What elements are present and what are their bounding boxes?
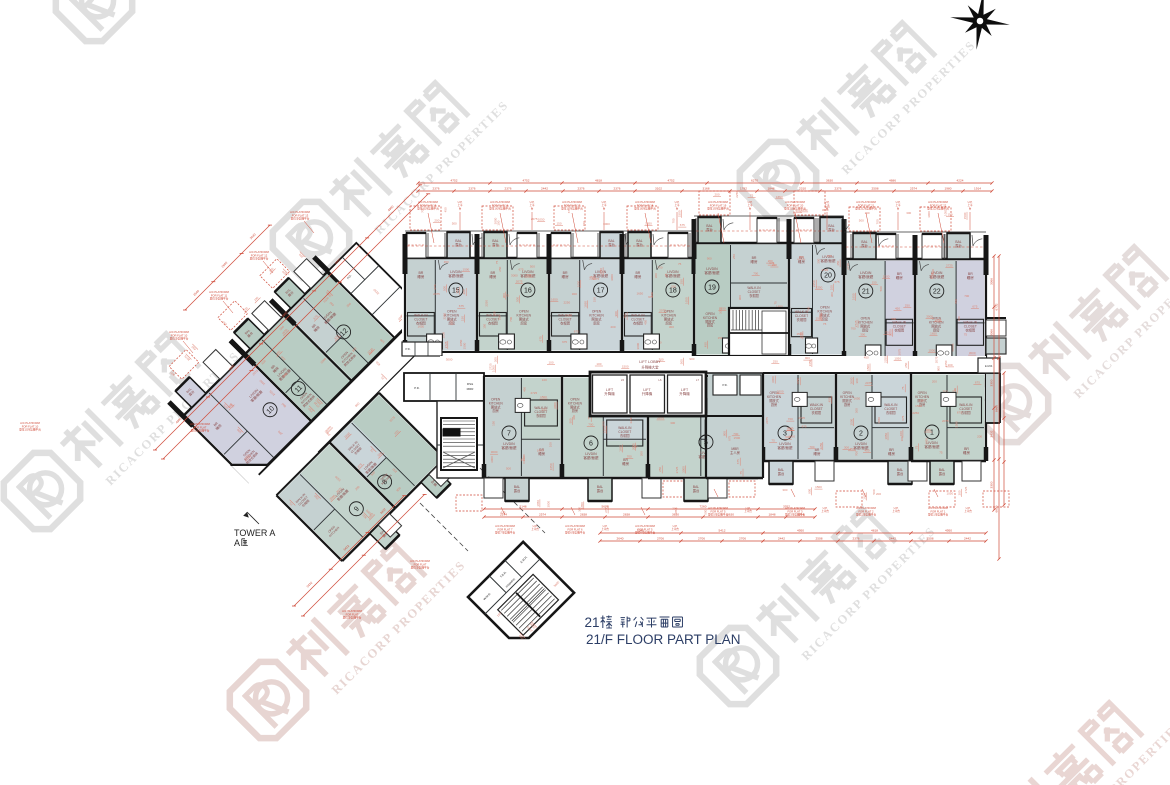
svg-text:單位22冷氣機平台: 單位22冷氣機平台: [927, 207, 949, 211]
svg-text:1500: 1500: [777, 389, 784, 393]
svg-text:4818: 4818: [871, 529, 878, 533]
svg-text:2376: 2376: [835, 187, 842, 191]
svg-text:廚房: 廚房: [572, 408, 578, 413]
svg-text:1650: 1650: [645, 222, 652, 226]
svg-text:2250: 2250: [883, 356, 887, 363]
svg-text:2376: 2376: [433, 187, 440, 191]
svg-text:5412: 5412: [719, 529, 726, 533]
svg-text:單位15冷氣機平台: 單位15冷氣機平台: [417, 207, 439, 211]
svg-text:300: 300: [855, 408, 859, 413]
svg-text:500: 500: [680, 359, 684, 364]
svg-text:睡房: 睡房: [622, 461, 630, 466]
svg-text:2075: 2075: [865, 381, 872, 385]
svg-text:300: 300: [670, 421, 675, 425]
svg-text:2442: 2442: [889, 537, 896, 541]
svg-text:675: 675: [827, 254, 832, 258]
svg-text:露台: 露台: [897, 471, 904, 476]
svg-text:450: 450: [632, 445, 637, 449]
svg-text:上平台: 上平台: [892, 509, 900, 513]
svg-text:150: 150: [498, 315, 502, 320]
svg-text:4752: 4752: [668, 179, 675, 183]
svg-text:900: 900: [738, 295, 742, 300]
svg-text:單位冷氣機平台: 單位冷氣機平台: [291, 217, 310, 221]
svg-text:300: 300: [494, 357, 498, 362]
svg-text:5: 5: [704, 440, 708, 447]
svg-text:單位冷氣機平台: 單位冷氣機平台: [343, 616, 362, 620]
svg-text:100: 100: [947, 363, 952, 367]
svg-text:21: 21: [584, 615, 599, 630]
svg-text:300: 300: [782, 488, 787, 492]
svg-text:1050: 1050: [930, 272, 934, 279]
svg-text:2725: 2725: [946, 264, 953, 268]
svg-text:700: 700: [627, 454, 632, 458]
svg-text:2508: 2508: [872, 187, 879, 191]
svg-text:75: 75: [914, 445, 918, 449]
svg-text:RS&: RS&: [467, 382, 473, 386]
svg-text:2250: 2250: [912, 411, 919, 415]
svg-text:單位6冷氣機平台: 單位6冷氣機平台: [565, 531, 586, 535]
svg-text:200: 200: [932, 380, 937, 384]
svg-text:衣帽間: 衣帽間: [749, 293, 759, 298]
svg-text:450: 450: [828, 397, 832, 402]
svg-text:200: 200: [977, 435, 982, 439]
svg-text:150: 150: [461, 316, 465, 321]
svg-text:250: 250: [799, 255, 804, 259]
svg-text:客廳/飯廳: 客廳/飯廳: [502, 445, 517, 450]
svg-text:1500: 1500: [883, 274, 890, 278]
svg-text:675: 675: [539, 336, 543, 341]
svg-text:150: 150: [582, 221, 586, 226]
svg-text:升降機: 升降機: [604, 391, 615, 396]
svg-text:1650: 1650: [418, 324, 425, 328]
svg-text:睡房: 睡房: [967, 275, 975, 280]
svg-text:700: 700: [851, 327, 856, 331]
svg-text:1980: 1980: [945, 187, 952, 191]
svg-text:1500: 1500: [955, 421, 959, 428]
svg-text:單位18冷氣機平台: 單位18冷氣機平台: [634, 207, 656, 211]
svg-text:5148: 5148: [520, 505, 527, 509]
svg-text:1650: 1650: [877, 417, 881, 424]
svg-text:100: 100: [548, 442, 552, 447]
svg-text:單位20冷氣機平台: 單位20冷氣機平台: [784, 207, 806, 211]
svg-text:升降機: 升降機: [642, 391, 653, 396]
svg-text:1500: 1500: [928, 349, 935, 353]
svg-text:1500: 1500: [963, 212, 967, 219]
svg-text:2706: 2706: [657, 537, 664, 541]
svg-text:100: 100: [548, 361, 553, 365]
svg-text:200: 200: [714, 193, 719, 197]
svg-text:單位5冷氣機平台: 單位5冷氣機平台: [708, 513, 729, 517]
svg-text:睡房: 睡房: [562, 274, 570, 279]
svg-text:TOWER A: TOWER A: [234, 528, 275, 538]
svg-text:1650: 1650: [808, 359, 812, 366]
svg-text:1650: 1650: [580, 502, 584, 509]
svg-text:1050: 1050: [946, 492, 953, 496]
svg-text:675: 675: [769, 261, 774, 265]
svg-text:2075: 2075: [659, 309, 666, 313]
svg-text:單位19冷氣機平台: 單位19冷氣機平台: [707, 207, 729, 211]
svg-text:3168: 3168: [703, 187, 710, 191]
svg-text:2250: 2250: [629, 416, 633, 423]
svg-text:2250: 2250: [442, 313, 446, 320]
svg-text:衣帽間: 衣帽間: [961, 410, 971, 415]
svg-text:300: 300: [455, 288, 459, 293]
svg-text:250: 250: [732, 254, 736, 259]
svg-text:單位17冷氣機平台: 單位17冷氣機平台: [561, 207, 583, 211]
svg-text:300: 300: [493, 311, 497, 316]
svg-text:450: 450: [895, 307, 900, 311]
svg-text:1500: 1500: [915, 404, 922, 408]
svg-text:2310: 2310: [799, 187, 806, 191]
svg-text:700: 700: [964, 294, 969, 298]
svg-text:LIFT LOBBY: LIFT LOBBY: [639, 360, 661, 364]
svg-text:200: 200: [462, 289, 466, 294]
svg-text:1650: 1650: [549, 463, 553, 470]
svg-text:500: 500: [541, 408, 546, 412]
svg-text:1500: 1500: [815, 485, 822, 489]
svg-text:廚房: 廚房: [493, 408, 499, 413]
svg-text:900: 900: [614, 311, 618, 316]
svg-text:2376: 2376: [853, 537, 860, 541]
svg-text:1650: 1650: [619, 445, 623, 452]
svg-text:台: 台: [826, 206, 829, 210]
svg-text:主人房: 主人房: [730, 450, 741, 455]
svg-text:3000: 3000: [546, 501, 550, 508]
svg-text:3000: 3000: [490, 456, 494, 463]
svg-text:150: 150: [947, 213, 952, 217]
svg-text:675: 675: [957, 411, 962, 415]
svg-text:3000: 3000: [494, 217, 498, 224]
svg-text:1050: 1050: [492, 365, 496, 372]
svg-text:300: 300: [669, 325, 674, 329]
svg-text:150: 150: [865, 211, 870, 215]
svg-text:2725: 2725: [846, 263, 850, 270]
svg-text:客廳/飯廳: 客廳/飯廳: [584, 455, 599, 460]
svg-text:1500: 1500: [816, 317, 823, 321]
svg-text:200: 200: [876, 492, 881, 496]
svg-text:衣帽間: 衣帽間: [536, 413, 546, 418]
svg-text:700: 700: [807, 306, 811, 311]
svg-text:客廳/飯廳: 客廳/飯廳: [858, 274, 873, 279]
svg-text:250: 250: [905, 304, 910, 308]
svg-text:3432: 3432: [990, 430, 994, 437]
svg-text:500: 500: [516, 297, 520, 302]
svg-text:1650: 1650: [551, 298, 558, 302]
svg-text:1650: 1650: [719, 306, 726, 310]
svg-text:E.M.R.: E.M.R.: [985, 364, 993, 368]
svg-text:20: 20: [824, 273, 832, 280]
svg-text:台: 台: [749, 206, 752, 210]
svg-text:1650: 1650: [854, 397, 861, 401]
svg-text:1500: 1500: [849, 418, 853, 425]
svg-text:露台: 露台: [778, 471, 785, 476]
svg-text:250: 250: [498, 266, 502, 271]
svg-text:3300: 3300: [990, 481, 994, 488]
svg-text:台: 台: [531, 206, 534, 210]
svg-text:2442: 2442: [778, 537, 785, 541]
svg-text:2640: 2640: [617, 537, 624, 541]
svg-text:2250: 2250: [812, 280, 816, 287]
svg-text:1500: 1500: [462, 342, 466, 349]
svg-text:4950: 4950: [797, 529, 804, 533]
svg-text:18: 18: [669, 288, 677, 295]
svg-text:500: 500: [443, 286, 447, 291]
svg-text:衣帽間: 衣帽間: [797, 317, 808, 322]
svg-text:3000: 3000: [636, 342, 640, 349]
svg-text:100: 100: [957, 316, 961, 321]
svg-text:500: 500: [530, 264, 535, 268]
svg-text:2574: 2574: [500, 513, 507, 517]
svg-text:700: 700: [672, 218, 676, 223]
svg-text:2376: 2376: [614, 187, 621, 191]
svg-text:300: 300: [855, 378, 859, 383]
svg-text:3000: 3000: [927, 211, 931, 218]
svg-text:22: 22: [933, 289, 941, 296]
svg-text:露台: 露台: [597, 488, 604, 493]
svg-text:1050: 1050: [538, 217, 545, 221]
svg-text:1050: 1050: [788, 435, 795, 439]
svg-text:500: 500: [452, 221, 457, 225]
svg-text:75: 75: [964, 333, 968, 337]
svg-text:900: 900: [936, 366, 940, 371]
svg-text:700: 700: [875, 219, 879, 224]
svg-text:21/F FLOOR PART PLAN: 21/F FLOOR PART PLAN: [586, 632, 741, 647]
svg-text:上平台: 上平台: [821, 509, 829, 513]
svg-text:P.D.: P.D.: [414, 386, 420, 390]
svg-text:100: 100: [542, 378, 547, 382]
svg-text:客廳/飯廳: 客廳/飯廳: [448, 273, 463, 278]
svg-text:900: 900: [689, 357, 694, 361]
svg-text:900: 900: [723, 431, 727, 436]
svg-text:P.D.: P.D.: [405, 347, 410, 351]
svg-text:300: 300: [906, 211, 911, 215]
svg-text:19: 19: [708, 285, 716, 292]
svg-text:450: 450: [703, 342, 707, 347]
svg-text:睡房: 睡房: [751, 259, 759, 264]
svg-text:500: 500: [879, 286, 883, 291]
svg-text:675: 675: [975, 381, 980, 385]
svg-text:300: 300: [572, 415, 576, 420]
svg-text:睡房: 睡房: [634, 274, 642, 279]
svg-text:1050: 1050: [935, 318, 942, 322]
svg-text:500: 500: [506, 467, 511, 471]
svg-text:2: 2: [859, 431, 863, 438]
svg-text:2725: 2725: [530, 391, 537, 395]
svg-text:3000: 3000: [926, 315, 933, 319]
svg-text:2075: 2075: [765, 417, 769, 424]
svg-text:3630: 3630: [826, 179, 833, 183]
svg-text:500: 500: [527, 273, 532, 277]
svg-text:3366: 3366: [990, 329, 994, 336]
svg-text:A: A: [234, 538, 240, 548]
svg-text:300: 300: [860, 332, 865, 336]
svg-text:2250: 2250: [563, 301, 570, 305]
svg-text:1650: 1650: [576, 280, 580, 287]
svg-text:450: 450: [444, 260, 449, 264]
svg-text:450: 450: [864, 356, 869, 360]
svg-text:3000: 3000: [446, 357, 453, 361]
svg-text:上平台: 上平台: [964, 509, 972, 513]
svg-text:5676: 5676: [602, 505, 609, 509]
svg-text:500: 500: [703, 509, 707, 514]
svg-text:200: 200: [958, 490, 962, 495]
svg-text:1500: 1500: [622, 365, 629, 369]
svg-text:4752: 4752: [523, 179, 530, 183]
svg-text:2075: 2075: [935, 356, 939, 363]
svg-text:500: 500: [859, 218, 864, 222]
svg-text:4686: 4686: [889, 179, 896, 183]
svg-text:6600: 6600: [995, 505, 999, 512]
svg-text:675: 675: [972, 305, 977, 309]
svg-text:150: 150: [592, 297, 596, 302]
svg-text:450: 450: [523, 387, 527, 392]
svg-text:1500: 1500: [565, 314, 572, 318]
svg-text:廚房: 廚房: [593, 321, 600, 326]
svg-text:衣帽間: 衣帽間: [812, 410, 822, 415]
svg-text:300: 300: [572, 292, 577, 296]
svg-text:升降機: 升降機: [679, 391, 690, 396]
svg-text:3366: 3366: [990, 278, 994, 285]
svg-text:6666: 6666: [995, 405, 999, 412]
svg-text:1500: 1500: [866, 364, 870, 371]
svg-text:台: 台: [969, 206, 972, 210]
svg-text:上平台: 上平台: [601, 527, 609, 531]
svg-text:1650: 1650: [685, 297, 689, 304]
svg-text:廚房: 廚房: [844, 402, 850, 407]
svg-text:2508: 2508: [816, 537, 823, 541]
svg-text:衣帽間: 衣帽間: [620, 433, 630, 438]
svg-text:衣帽間: 衣帽間: [633, 320, 644, 325]
svg-text:150: 150: [919, 398, 924, 402]
svg-text:2725: 2725: [798, 416, 805, 420]
svg-text:4752: 4752: [451, 179, 458, 183]
svg-text:675: 675: [433, 284, 437, 289]
svg-text:75: 75: [750, 194, 754, 198]
svg-text:300: 300: [449, 320, 453, 325]
svg-text:6: 6: [589, 441, 593, 448]
svg-text:台: 台: [459, 206, 462, 210]
svg-text:露台: 露台: [693, 488, 700, 493]
svg-text:3000: 3000: [553, 402, 557, 409]
svg-text:上平台: 上平台: [744, 509, 752, 513]
svg-text:睡房: 睡房: [798, 259, 806, 264]
svg-text:75: 75: [495, 260, 499, 264]
svg-text:450: 450: [864, 448, 869, 452]
svg-text:2075: 2075: [942, 419, 949, 423]
svg-text:3630: 3630: [672, 513, 679, 517]
svg-text:升降機大堂: 升降機大堂: [642, 365, 660, 370]
svg-text:客廳/飯廳: 客廳/飯廳: [821, 258, 836, 263]
svg-text:4224: 4224: [957, 179, 964, 183]
svg-text:單位16冷氣機平台: 單位16冷氣機平台: [489, 207, 511, 211]
svg-text:3000: 3000: [771, 376, 775, 383]
svg-text:單位冷氣機平台: 單位冷氣機平台: [191, 429, 210, 433]
svg-text:單位2冷氣機平台: 單位2冷氣機平台: [856, 513, 877, 517]
svg-text:4950: 4950: [945, 529, 952, 533]
svg-text:1650: 1650: [930, 332, 937, 336]
svg-text:200: 200: [434, 219, 439, 223]
svg-text:單位冷氣機平台: 單位冷氣機平台: [250, 257, 269, 261]
svg-text:台: 台: [676, 206, 679, 210]
svg-text:2838: 2838: [623, 513, 630, 517]
svg-text:1500: 1500: [678, 210, 682, 217]
svg-text:1914: 1914: [974, 187, 981, 191]
svg-text:1050: 1050: [894, 356, 901, 360]
svg-text:675: 675: [802, 425, 807, 429]
svg-text:單位冷氣機平台: 單位冷氣機平台: [210, 297, 229, 301]
svg-text:250: 250: [904, 362, 908, 367]
svg-text:客廳/飯廳: 客廳/飯廳: [778, 445, 793, 450]
svg-text:1650: 1650: [796, 378, 800, 385]
svg-text:700: 700: [753, 272, 758, 276]
svg-text:675: 675: [562, 340, 567, 344]
svg-text:2574: 2574: [910, 187, 917, 191]
svg-text:1500: 1500: [734, 436, 741, 440]
svg-text:3102: 3102: [655, 187, 662, 191]
svg-text:16: 16: [524, 288, 532, 295]
svg-text:1500: 1500: [602, 426, 606, 433]
svg-text:75: 75: [773, 301, 777, 305]
svg-text:100: 100: [596, 362, 601, 366]
svg-text:2706: 2706: [739, 537, 746, 541]
svg-text:1500: 1500: [463, 268, 470, 272]
svg-text:3000: 3000: [511, 274, 518, 278]
svg-text:單位21冷氣機平台: 單位21冷氣機平台: [855, 207, 877, 211]
svg-text:單位10冷氣機平台: 單位10冷氣機平台: [19, 428, 41, 432]
svg-text:75: 75: [771, 439, 775, 443]
svg-text:75: 75: [823, 322, 827, 326]
svg-text:1848: 1848: [769, 513, 776, 517]
svg-text:250: 250: [602, 421, 606, 426]
svg-text:睡房: 睡房: [417, 274, 424, 279]
svg-text:675: 675: [518, 268, 523, 272]
svg-text:1650: 1650: [537, 449, 544, 453]
svg-text:單位1冷氣機平台: 單位1冷氣機平台: [928, 513, 949, 517]
svg-text:900: 900: [805, 356, 810, 360]
svg-text:100: 100: [900, 436, 904, 441]
svg-text:台: 台: [897, 206, 900, 210]
svg-text:3000: 3000: [610, 274, 614, 281]
svg-text:睡房: 睡房: [888, 451, 896, 456]
svg-text:2725: 2725: [675, 466, 679, 473]
svg-text:75: 75: [901, 386, 905, 390]
svg-text:1650: 1650: [889, 329, 893, 336]
svg-text:100: 100: [899, 431, 903, 436]
svg-text:21: 21: [862, 289, 870, 296]
svg-text:700: 700: [733, 432, 738, 436]
svg-text:450: 450: [836, 260, 840, 265]
svg-text:1650: 1650: [852, 293, 856, 300]
svg-text:700: 700: [657, 265, 662, 269]
svg-text:1500: 1500: [796, 332, 803, 336]
svg-text:露台: 露台: [514, 488, 521, 493]
svg-text:200: 200: [610, 325, 615, 329]
svg-text:客廳/飯廳: 客廳/飯廳: [705, 270, 720, 275]
svg-text:700: 700: [588, 422, 593, 426]
svg-text:7260: 7260: [700, 505, 707, 509]
svg-text:2250: 2250: [735, 191, 739, 198]
svg-text:17: 17: [597, 288, 605, 295]
svg-text:500: 500: [891, 317, 896, 321]
svg-text:3000: 3000: [589, 277, 596, 281]
svg-text:2075: 2075: [897, 348, 901, 355]
svg-text:4818: 4818: [595, 179, 602, 183]
svg-text:廚房: 廚房: [771, 402, 777, 407]
svg-text:150: 150: [482, 323, 486, 328]
svg-text:3000: 3000: [969, 351, 976, 355]
svg-text:睡房: 睡房: [489, 274, 496, 279]
svg-text:250: 250: [679, 279, 683, 284]
